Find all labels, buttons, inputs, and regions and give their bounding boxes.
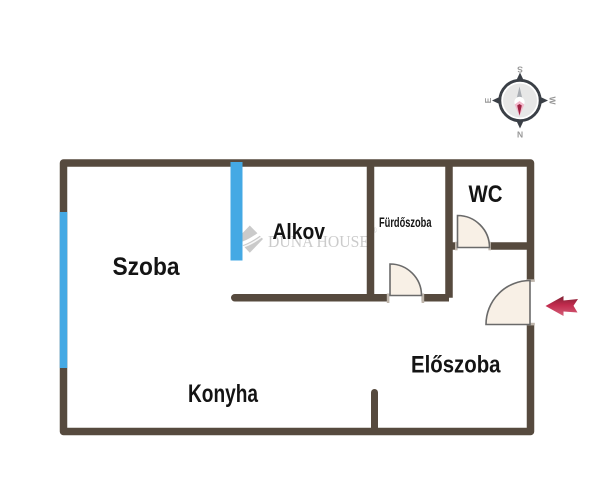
svg-text:Előszoba: Előszoba [411, 352, 501, 379]
svg-text:W: W [548, 96, 558, 105]
svg-text:Fürdőszoba: Fürdőszoba [379, 215, 432, 230]
svg-text:WC: WC [469, 181, 503, 208]
svg-text:N: N [517, 129, 523, 139]
svg-text:E: E [483, 97, 493, 103]
svg-text:Alkov: Alkov [273, 219, 326, 244]
svg-text:Konyha: Konyha [188, 380, 259, 408]
svg-text:Szoba: Szoba [113, 253, 181, 281]
svg-text:S: S [517, 65, 523, 75]
